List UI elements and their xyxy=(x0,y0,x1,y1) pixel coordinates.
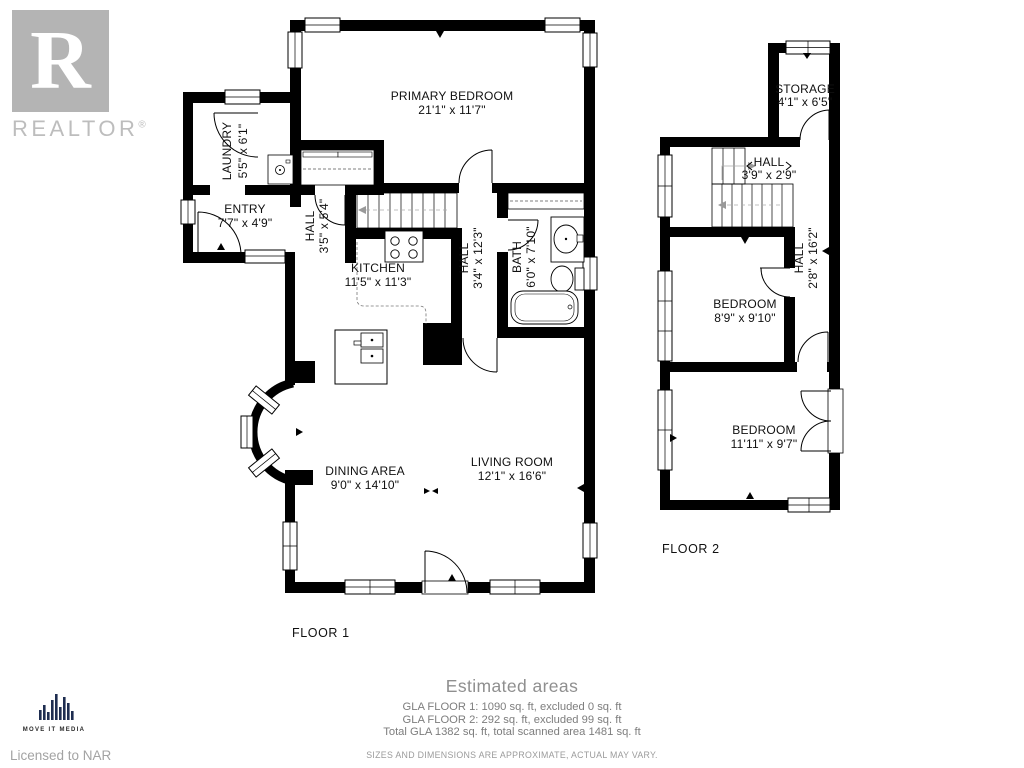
floor1-stairs xyxy=(357,193,457,228)
room-dims-kitchen: 11'5" x 11'3" xyxy=(345,275,412,289)
room-label-entry: ENTRY xyxy=(224,202,265,216)
room-dims-laundry: 5'5" x 6'1" xyxy=(236,124,250,179)
estimated-areas-title: Estimated areas xyxy=(0,676,1024,697)
room-label-hall-main: HALL xyxy=(457,242,471,273)
room-label-hall-entry: HALL xyxy=(303,210,317,241)
room-dims-bedroom-1: 8'9" x 9'10" xyxy=(714,311,776,325)
licensed-to-text: Licensed to NAR xyxy=(10,748,111,763)
room-label-hall-side: HALL xyxy=(792,242,806,273)
room-label-laundry: LAUNDRY xyxy=(220,122,234,181)
room-dims-entry: 7'7" x 4'9" xyxy=(218,216,273,230)
room-label-hall-upper: HALL xyxy=(754,155,785,169)
room-dims-primary-bedroom: 21'1" x 11'7" xyxy=(418,103,486,117)
room-dims-storage: 4'1" x 6'5" xyxy=(778,95,833,109)
gla-total-line: Total GLA 1382 sq. ft, total scanned are… xyxy=(0,726,1024,739)
room-dims-hall-main: 3'4" x 12'3" xyxy=(471,227,485,289)
floor1-label: FLOOR 1 xyxy=(292,626,350,640)
move-it-media-bars-icon xyxy=(24,692,84,720)
room-label-kitchen: KITCHEN xyxy=(351,261,405,275)
estimated-areas-block: Estimated areas GLA FLOOR 1: 1090 sq. ft… xyxy=(0,676,1024,760)
room-label-bath: BATH xyxy=(510,241,524,273)
room-label-storage: STORAGE xyxy=(775,82,835,96)
room-dims-bath: 6'0" x 7'10" xyxy=(524,226,538,288)
room-dims-hall-upper: 3'9" x 2'9" xyxy=(742,168,797,182)
floor-plan-page: R REALTOR® xyxy=(0,0,1024,768)
room-dims-living-room: 12'1" x 16'6" xyxy=(478,469,546,483)
room-dims-bedroom-2: 11'11" x 9'7" xyxy=(731,437,798,451)
room-label-dining-area: DINING AREA xyxy=(325,464,405,478)
room-dims-dining-area: 9'0" x 14'10" xyxy=(331,478,399,492)
room-label-primary-bedroom: PRIMARY BEDROOM xyxy=(391,89,514,103)
room-label-living-room: LIVING ROOM xyxy=(471,455,553,469)
move-it-media-text: MOVE IT MEDIA xyxy=(22,727,86,733)
gla-floor2-line: GLA FLOOR 2: 292 sq. ft, excluded 99 sq.… xyxy=(0,714,1024,727)
room-label-bedroom-2: BEDROOM xyxy=(732,423,795,437)
room-dims-hall-entry: 3'5" x 5'4" xyxy=(317,199,331,254)
room-label-bedroom-1: BEDROOM xyxy=(713,297,776,311)
floor2-label: FLOOR 2 xyxy=(662,542,720,556)
move-it-media-logo: MOVE IT MEDIA xyxy=(22,692,86,733)
room-dims-hall-side: 2'8" x 16'2" xyxy=(806,227,820,289)
floor-plan-drawing: PRIMARY BEDROOM 21'1" x 11'7" LAUNDRY 5'… xyxy=(0,0,1024,768)
gla-floor1-line: GLA FLOOR 1: 1090 sq. ft, excluded 0 sq.… xyxy=(0,701,1024,714)
disclaimer-text: SIZES AND DIMENSIONS ARE APPROXIMATE, AC… xyxy=(0,750,1024,760)
